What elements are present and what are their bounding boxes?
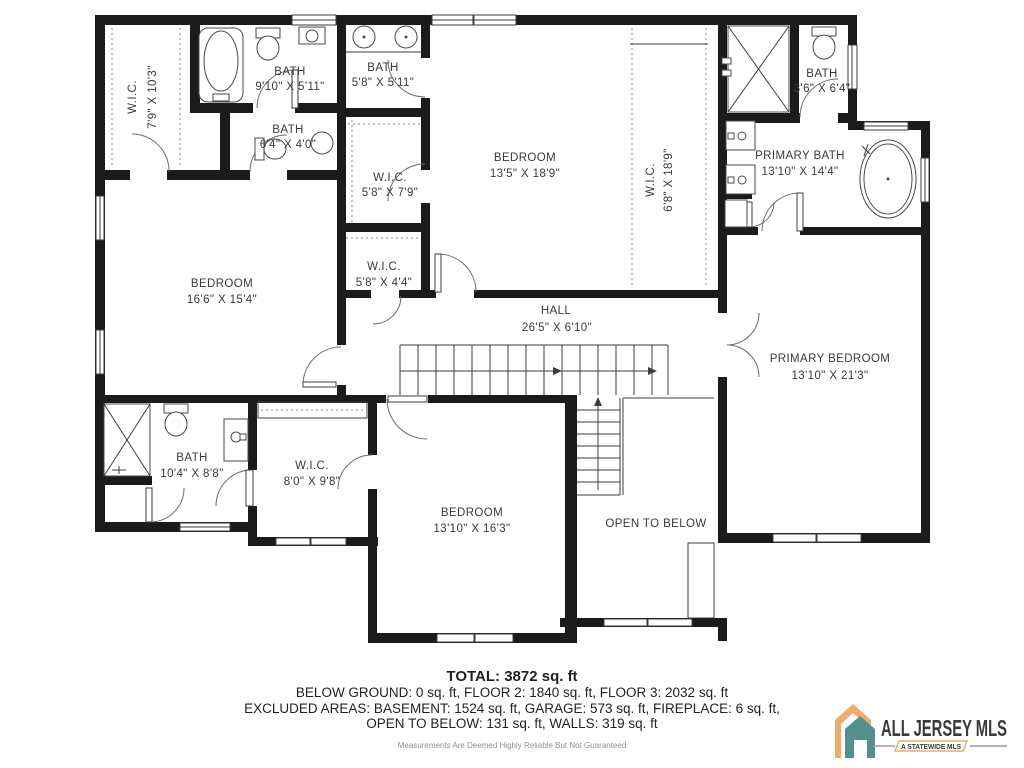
room-label: BATH <box>274 66 305 78</box>
total-area: TOTAL: 3872 sq. ft <box>0 668 1024 685</box>
mls-logo: ALL JERSEY MLS A STATEWIDE MLS <box>827 696 1012 762</box>
room-dims: 6'8" X 18'9" <box>663 148 675 211</box>
room-label: W.I.C. <box>295 460 329 472</box>
toilet-icon <box>812 27 836 59</box>
vanity-icon <box>726 121 755 194</box>
room-label: BEDROOM <box>191 278 253 290</box>
room-dims: 10'4" X 8'8" <box>160 468 223 480</box>
room-label: W.I.C. <box>373 172 407 184</box>
room-dims: 8'0" X 9'8" <box>284 476 341 488</box>
room-dims: 5'8" X 5'11" <box>352 77 415 89</box>
room-label: PRIMARY BEDROOM <box>770 353 891 365</box>
room-dims: 13'5" X 18'9" <box>490 168 560 180</box>
room-dims: 16'6" X 15'4" <box>187 294 257 306</box>
room-dims: 13'10" X 14'4" <box>762 166 839 178</box>
sink-icon <box>299 27 325 44</box>
room-label: BEDROOM <box>494 152 556 164</box>
toilet-icon <box>164 404 188 436</box>
tagline-text: A STATEWIDE MLS <box>901 742 961 751</box>
shower-icon <box>104 404 150 476</box>
room-dims: 5'8" X 7'9" <box>362 187 419 199</box>
staircase <box>400 345 714 618</box>
soaking-tub-icon <box>860 140 916 218</box>
room-dims: 7'9" X 10'3" <box>147 65 159 128</box>
room-label: BATH <box>272 124 303 136</box>
room-dims: 3'6" X 6'4" <box>794 83 851 95</box>
room-label: PRIMARY BATH <box>755 150 845 162</box>
room-label: BEDROOM <box>441 507 503 519</box>
logo-tagline: A STATEWIDE MLS <box>873 741 1007 751</box>
room-dims: 13'10" X 21'3" <box>792 370 869 382</box>
room-label: W.I.C. <box>367 261 401 273</box>
room-labels: W.I.C. 7'9" X 10'3" BATH 9'10" X 5'11" B… <box>127 62 890 535</box>
vanity-icon <box>224 419 248 461</box>
logo-text: ALL JERSEY MLS <box>881 715 1007 741</box>
linen-closet <box>725 200 747 227</box>
room-label: BATH <box>367 62 398 74</box>
room-label: OPEN TO BELOW <box>605 518 706 530</box>
walls <box>95 15 930 643</box>
room-dims: 13'10" X 16'3" <box>434 523 511 535</box>
toilet-icon <box>256 28 280 60</box>
room-label: W.I.C. <box>645 163 657 197</box>
room-label: BATH <box>806 68 837 80</box>
bathtub-icon <box>199 28 243 102</box>
room-dims: 9'10" X 5'11" <box>255 81 324 93</box>
double-vanity-icon <box>346 26 421 52</box>
room-label: HALL <box>541 305 572 317</box>
floor-plan: W.I.C. 7'9" X 10'3" BATH 9'10" X 5'11" B… <box>0 0 1024 671</box>
shower-icon <box>722 26 789 112</box>
room-dims: 26'5" X 6'10" <box>522 322 592 334</box>
house-icon <box>835 704 875 758</box>
room-dims: 6'4" X 4'0" <box>260 139 317 151</box>
room-label: W.I.C. <box>127 80 139 114</box>
room-label: BATH <box>176 452 207 464</box>
room-dims: 5'8" X 4'4" <box>356 277 413 289</box>
